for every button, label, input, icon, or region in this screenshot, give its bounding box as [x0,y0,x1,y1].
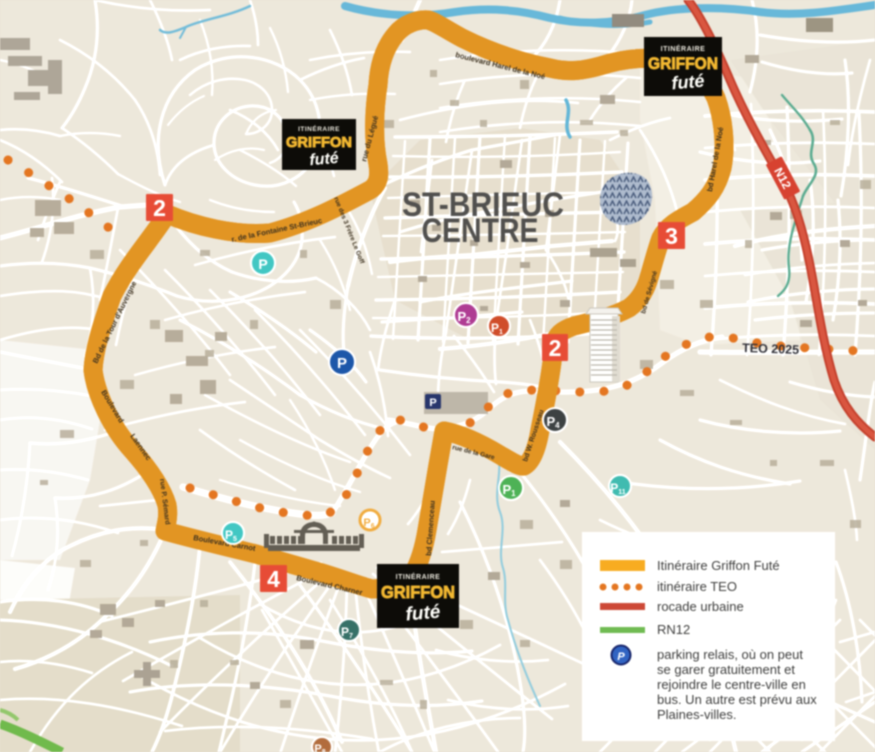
svg-text:futé: futé [309,150,340,170]
svg-text:futé: futé [405,601,442,625]
svg-text:2: 2 [153,195,166,221]
svg-text:ITINÉRAIRE: ITINÉRAIRE [298,124,340,133]
svg-text:rejoindre le centre-ville en: rejoindre le centre-ville en [657,677,806,692]
svg-text:RN12: RN12 [657,622,690,637]
svg-text:GRIFFON: GRIFFON [648,55,718,73]
svg-text:parking relais, où on peut: parking relais, où on peut [657,647,803,662]
svg-text:P: P [258,256,267,272]
svg-text:futé: futé [671,71,706,94]
svg-text:Itinéraire Griffon Futé: Itinéraire Griffon Futé [657,558,780,573]
svg-text:rocade urbaine: rocade urbaine [657,599,744,614]
svg-text:GRIFFON: GRIFFON [286,134,352,151]
svg-text:P: P [429,397,436,409]
svg-text:P: P [337,355,347,372]
svg-text:2: 2 [549,335,562,361]
svg-text:itinéraire TEO: itinéraire TEO [657,579,737,594]
svg-text:CENTRE: CENTRE [422,212,539,250]
svg-text:bus. Un autre est prévu aux: bus. Un autre est prévu aux [657,692,817,707]
svg-text:se garer gratuitement et: se garer gratuitement et [657,662,795,677]
svg-text:3: 3 [665,223,678,249]
svg-text:ITINÉRAIRE: ITINÉRAIRE [661,44,706,53]
svg-text:TEO 2025: TEO 2025 [742,341,799,357]
svg-text:Plaines-villes.: Plaines-villes. [657,707,736,722]
svg-text:ITINÉRAIRE: ITINÉRAIRE [396,572,441,581]
svg-text:GRIFFON: GRIFFON [381,582,455,602]
svg-text:P: P [617,651,625,663]
svg-text:4: 4 [267,566,280,592]
